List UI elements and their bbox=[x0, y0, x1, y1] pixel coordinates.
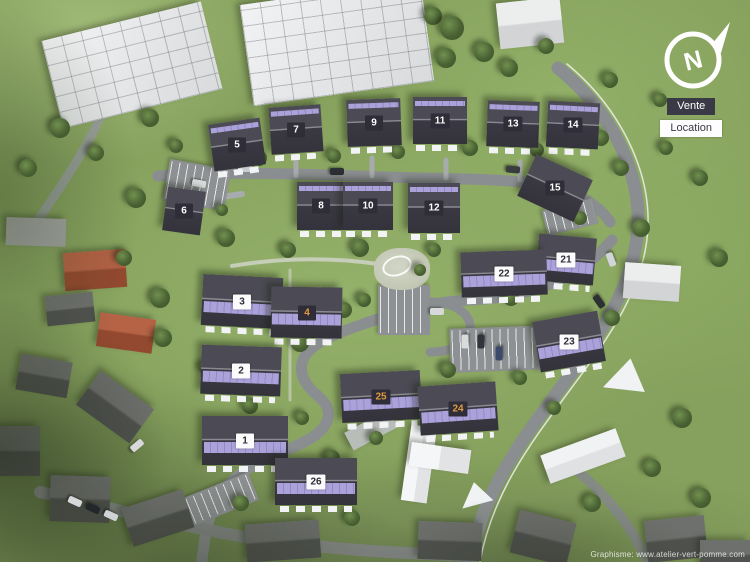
legend-location-label: Location bbox=[660, 120, 722, 137]
tree bbox=[233, 495, 249, 511]
road-bottom-right bbox=[576, 470, 648, 562]
building-7[interactable]: 7 bbox=[268, 104, 323, 155]
building-13[interactable]: 13 bbox=[486, 100, 540, 148]
building-5[interactable]: 5 bbox=[208, 118, 266, 172]
building-number-chip-26[interactable]: 26 bbox=[306, 474, 325, 489]
context-building-gray-house bbox=[45, 292, 96, 327]
tree bbox=[710, 249, 728, 267]
building-number-chip-12[interactable]: 12 bbox=[424, 201, 443, 216]
tree bbox=[691, 488, 711, 508]
parking-lot bbox=[378, 285, 430, 335]
building-8[interactable]: 8 bbox=[297, 182, 345, 230]
building-26[interactable]: 26 bbox=[275, 458, 357, 505]
context-building-gray-house bbox=[245, 519, 321, 562]
context-building-gray-house bbox=[0, 426, 40, 476]
tree bbox=[327, 149, 341, 163]
tree bbox=[169, 139, 183, 153]
building-10[interactable]: 10 bbox=[343, 182, 393, 230]
tree bbox=[427, 243, 441, 257]
parked-car bbox=[462, 335, 469, 349]
compass-letter: N bbox=[681, 45, 705, 77]
parked-car bbox=[478, 335, 485, 349]
building-14[interactable]: 14 bbox=[546, 101, 600, 150]
building-11[interactable]: 11 bbox=[413, 97, 467, 144]
building-22[interactable]: 22 bbox=[460, 250, 548, 298]
context-building-white-house bbox=[496, 0, 564, 49]
context-building-gray-house bbox=[417, 521, 482, 561]
tree bbox=[692, 170, 708, 186]
context-building-gray-flat bbox=[6, 217, 67, 247]
tree bbox=[154, 329, 172, 347]
tree bbox=[344, 510, 360, 526]
tree bbox=[217, 229, 235, 247]
building-number-chip-24[interactable]: 24 bbox=[448, 401, 467, 416]
building-number-chip-14[interactable]: 14 bbox=[563, 118, 582, 133]
compass-icon: N bbox=[656, 20, 734, 96]
building-number-chip-15[interactable]: 15 bbox=[545, 181, 564, 196]
tree bbox=[369, 431, 383, 445]
tree bbox=[659, 141, 673, 155]
tree bbox=[424, 7, 442, 25]
tree bbox=[19, 159, 37, 177]
building-number-chip-1[interactable]: 1 bbox=[236, 433, 254, 448]
tree bbox=[513, 371, 527, 385]
context-building-white-house bbox=[623, 262, 681, 302]
building-number-chip-25[interactable]: 25 bbox=[371, 389, 390, 404]
tree bbox=[357, 293, 371, 307]
building-number-chip-23[interactable]: 23 bbox=[559, 334, 578, 349]
building-number-chip-10[interactable]: 10 bbox=[358, 199, 377, 214]
tree bbox=[126, 188, 146, 208]
tree bbox=[583, 494, 601, 512]
building-number-chip-22[interactable]: 22 bbox=[494, 266, 513, 281]
tree bbox=[88, 145, 104, 161]
parked-car bbox=[506, 165, 521, 173]
tree bbox=[50, 118, 70, 138]
building-23[interactable]: 23 bbox=[532, 311, 606, 373]
building-number-chip-13[interactable]: 13 bbox=[503, 117, 522, 132]
building-number-chip-8[interactable]: 8 bbox=[312, 199, 330, 214]
building-9[interactable]: 9 bbox=[346, 98, 402, 147]
tree bbox=[414, 264, 426, 276]
tree bbox=[613, 160, 629, 176]
parked-car bbox=[330, 168, 344, 175]
tree bbox=[604, 310, 620, 326]
tree bbox=[632, 219, 650, 237]
tree bbox=[672, 408, 692, 428]
building-number-chip-6[interactable]: 6 bbox=[175, 204, 193, 219]
tree bbox=[216, 204, 228, 216]
tree bbox=[436, 48, 456, 68]
building-2[interactable]: 2 bbox=[200, 345, 282, 397]
building-number-chip-21[interactable]: 21 bbox=[556, 252, 575, 267]
tree bbox=[141, 109, 159, 127]
tree bbox=[547, 401, 561, 415]
parked-car bbox=[430, 308, 444, 315]
parked-car bbox=[496, 347, 503, 361]
site-plan: N Vente Location Graphisme: www.atelier-… bbox=[0, 0, 750, 562]
building-number-chip-9[interactable]: 9 bbox=[365, 115, 383, 130]
building-number-chip-11[interactable]: 11 bbox=[431, 113, 450, 128]
building-number-chip-4[interactable]: 4 bbox=[298, 305, 316, 320]
tree bbox=[440, 362, 456, 378]
building-number-chip-2[interactable]: 2 bbox=[232, 363, 250, 378]
building-6[interactable]: 6 bbox=[162, 187, 206, 236]
building-number-chip-5[interactable]: 5 bbox=[228, 137, 246, 152]
building-number-chip-3[interactable]: 3 bbox=[233, 294, 251, 309]
building-4[interactable]: 4 bbox=[271, 286, 343, 338]
tree bbox=[643, 459, 661, 477]
building-12[interactable]: 12 bbox=[408, 183, 460, 233]
legend: Vente Location bbox=[660, 98, 722, 137]
tree bbox=[474, 42, 494, 62]
tree bbox=[150, 288, 170, 308]
tree bbox=[602, 72, 618, 88]
building-24[interactable]: 24 bbox=[417, 381, 498, 435]
tree bbox=[500, 59, 518, 77]
tree bbox=[116, 250, 132, 266]
tree bbox=[351, 239, 369, 257]
tree bbox=[295, 411, 309, 425]
path-playground bbox=[232, 259, 392, 266]
tree bbox=[280, 242, 296, 258]
legend-vente-label: Vente bbox=[667, 98, 715, 115]
tree bbox=[440, 16, 464, 40]
credit-text: Graphisme: www.atelier-vert-pomme.com bbox=[590, 550, 745, 559]
building-number-chip-7[interactable]: 7 bbox=[287, 122, 305, 137]
building-25[interactable]: 25 bbox=[340, 370, 422, 423]
tree bbox=[538, 38, 554, 54]
